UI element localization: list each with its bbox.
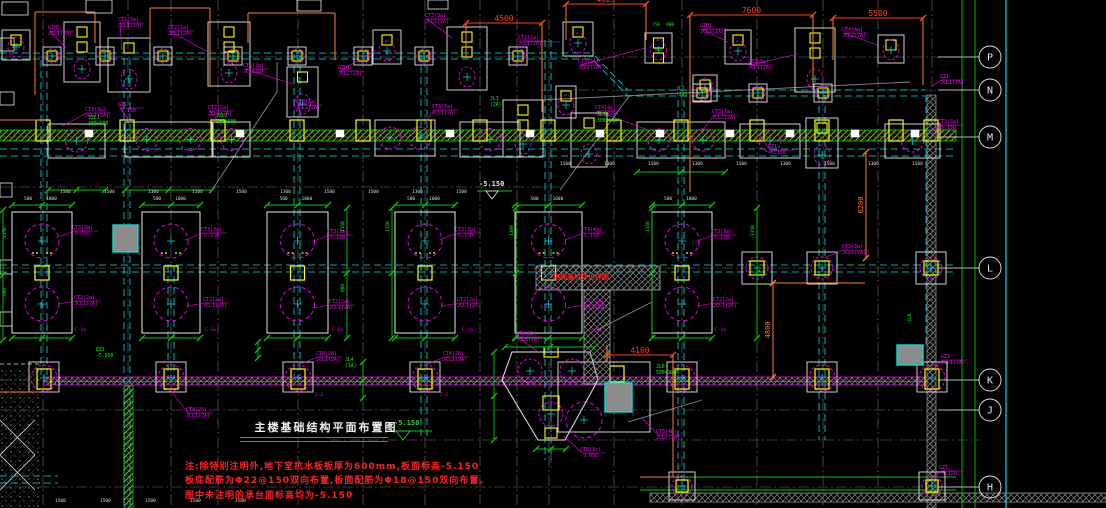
tick-label: 1300 xyxy=(604,161,615,167)
tick-label: 1500 xyxy=(145,498,156,504)
beam-tag: (1A) xyxy=(345,363,357,369)
grid-bubble-label-M: M xyxy=(987,133,993,144)
tick-label: 1300 xyxy=(868,161,879,167)
strip-tick xyxy=(851,130,859,137)
element-tag: JCL1(2A) xyxy=(941,360,965,366)
section-polyline xyxy=(540,82,910,100)
element-tag: JCL1(2A) xyxy=(186,413,210,419)
title-underline-2 xyxy=(240,441,388,442)
pad-dim-label: 1000 xyxy=(46,196,57,202)
pad-dim-label: 500 xyxy=(531,196,539,202)
tick-label: 1500 xyxy=(912,161,923,167)
element-tag: JCL1(2A) xyxy=(443,357,467,363)
plan-elevation-label: -5.150 xyxy=(479,180,504,188)
edge-box xyxy=(2,2,28,15)
edge-box xyxy=(297,0,321,11)
element-tag: -5.150 xyxy=(581,233,599,239)
beam-tag: JL6 xyxy=(656,364,665,370)
beam-tag: (2A) xyxy=(676,92,688,98)
tick-label: 1500 xyxy=(456,189,467,195)
element-tag: -5.150 xyxy=(455,233,473,239)
note-line-2: 板底配筋为Φ22@150双向布置,板面配筋为Φ18@150双向布置。 xyxy=(185,473,489,486)
strip-tick xyxy=(526,130,534,137)
element-tag: JCL2(2A) xyxy=(578,65,602,71)
tick-label: 1500 xyxy=(55,498,66,504)
element-tag: JCL1(2A) xyxy=(203,303,227,309)
element-tag: JCL2(2A) xyxy=(656,435,680,441)
tick-label: 1500 xyxy=(824,161,835,167)
tick-label: 1300 xyxy=(280,189,291,195)
element-tag: JCL2(2A) xyxy=(712,115,736,121)
element-tag: -5.150 xyxy=(118,108,136,114)
green-dim-label: 900 xyxy=(340,284,346,292)
column-square xyxy=(810,48,820,58)
pad-dim-label: 500 xyxy=(280,196,288,202)
section-tag: 2-2 xyxy=(440,392,448,398)
element-tag: JCL1(2A) xyxy=(842,250,866,256)
cad-viewport: 5001000500100050010005001000500100050010… xyxy=(0,0,1106,508)
element-tag: JCL1(2A) xyxy=(425,19,449,25)
pad-dim-label: 500 xyxy=(407,196,415,202)
tick-label: 1500 xyxy=(324,189,335,195)
element-tag: JCL2(2A) xyxy=(338,71,362,77)
beam-tag: JL3 xyxy=(490,96,499,102)
beam-tag: JZL2 xyxy=(216,113,228,119)
pad-dim-label: 1000 xyxy=(429,196,440,202)
column-square xyxy=(654,53,664,63)
element-tag: JCL1(2A) xyxy=(48,31,72,37)
tick-label: 1500 xyxy=(192,189,203,195)
green-dim-label: JL8 xyxy=(907,314,913,322)
beam-tag: 500x1200 xyxy=(656,370,679,376)
pit-square xyxy=(113,225,138,252)
pad-dim-label: 500 xyxy=(24,196,32,202)
grid-bubble-label-L: L xyxy=(987,264,993,275)
wall-strip-left xyxy=(124,386,133,508)
strip-tick xyxy=(85,130,93,137)
beam-tag: -5.950 xyxy=(96,353,113,359)
beam-tag: 300x600 xyxy=(216,119,236,125)
dim-label-4825: 4825 xyxy=(596,0,615,4)
note-line-1: 注:除特别注明外,地下室抗水板板厚为600mm,板面标高-5.150 xyxy=(185,459,479,472)
column-square xyxy=(298,72,308,82)
element-tag: JCL1(2A) xyxy=(713,303,737,309)
element-tag: -5.150 xyxy=(201,233,219,239)
beam-tag: 300x600 xyxy=(88,121,108,127)
tick-label: 1300 xyxy=(412,189,423,195)
grid-bubble-label-H: H xyxy=(987,483,993,494)
cad-canvas: 5001000500100050010005001000500100050010… xyxy=(0,0,1106,508)
column-square xyxy=(518,120,528,130)
beam-tag: JL2 xyxy=(676,86,685,92)
tick-label: 1500 xyxy=(100,498,111,504)
pit-square xyxy=(897,345,923,365)
tick-label: 1500 xyxy=(648,161,659,167)
tick-label: 1500 xyxy=(736,161,747,167)
element-tag: JCL1(2A) xyxy=(518,41,542,47)
element-tag: JCL1(2A) xyxy=(700,29,724,35)
tick-label: 1300 xyxy=(780,161,791,167)
element-tag: JCL1(2A) xyxy=(457,303,481,309)
dim-label-4500: 4500 xyxy=(494,14,513,23)
element-tag: JCL2(2A) xyxy=(842,33,866,39)
green-dim-label: 900 xyxy=(2,288,8,296)
column-square xyxy=(810,33,820,43)
pit-square xyxy=(605,383,632,412)
element-tag: -5.150 xyxy=(72,231,90,237)
column-square xyxy=(224,27,234,37)
green-dim-label: 1350 xyxy=(750,225,756,236)
tick-label: 1500 xyxy=(236,189,247,195)
tick-label: 1500 xyxy=(560,161,571,167)
tick-label: 1500 xyxy=(104,189,115,195)
pile-cap xyxy=(267,212,328,333)
note-line-3: 图中未注明的承台面标高均为-5.150 xyxy=(185,488,353,501)
green-dim-label: 1150 xyxy=(385,221,391,232)
element-tag: JCL1(2A) xyxy=(583,305,607,311)
green-dim-label: 900 xyxy=(666,22,674,28)
dim-label-6200: 6200 xyxy=(857,197,865,214)
elev-triangle xyxy=(486,191,498,199)
element-tag: JCL1(2A) xyxy=(432,110,456,116)
strip-tick xyxy=(911,130,919,137)
column-square xyxy=(733,35,743,45)
grid-bubble-label-N: N xyxy=(987,86,993,97)
grid-bubble-label-K: K xyxy=(987,376,993,387)
tick-label: 1300 xyxy=(148,189,159,195)
drawing-title: 主楼基础结构平面布置图 xyxy=(246,419,406,435)
element-tag: -5.150 xyxy=(939,471,957,477)
strip-tick xyxy=(656,130,664,137)
element-tag: JCL1(2A) xyxy=(118,23,142,29)
strip-tick xyxy=(726,130,734,137)
column-square xyxy=(124,43,134,53)
element-tag: JCL3(2A) xyxy=(516,337,540,343)
strip-tick xyxy=(446,130,454,137)
strip-tick xyxy=(236,130,244,137)
pad-unit xyxy=(806,118,838,168)
edge-box xyxy=(0,312,12,326)
green-dim-label: 1150 xyxy=(2,227,8,238)
pad-unit xyxy=(503,100,543,157)
element-tag: JCL1(2A) xyxy=(74,301,98,307)
element-tag: JCL1(2A) xyxy=(329,305,353,311)
column-square xyxy=(584,118,594,128)
column-square xyxy=(518,105,528,115)
green-dim-label: 750 xyxy=(652,22,660,28)
elevator-pit-label: 电梯基坑详见详图 xyxy=(553,274,623,281)
dim-label-4100: 4100 xyxy=(630,346,649,355)
element-tag: JCL1(2A) xyxy=(748,65,772,71)
strip-tick xyxy=(596,130,604,137)
section-tag: C-1a xyxy=(462,327,473,333)
section-tag: C-1a xyxy=(75,327,86,333)
edge-box xyxy=(0,92,14,105)
tick-label: 1500 xyxy=(60,189,71,195)
edge-box xyxy=(0,183,12,197)
column-square xyxy=(382,35,392,45)
section-tag: C-1a xyxy=(715,327,726,333)
title-elevation-label: -5.150 xyxy=(394,419,419,427)
grid-bubble-label-P: P xyxy=(987,53,993,64)
element-tag: JCL1(2A) xyxy=(940,80,964,86)
beam-tag: DZ1 xyxy=(96,347,105,353)
pad-dim-label: 1000 xyxy=(302,196,313,202)
wall-strip-right xyxy=(927,95,936,508)
element-tag: -5.150 xyxy=(327,235,345,241)
green-dim-label: 1150 xyxy=(645,221,651,232)
section-tag: 2-2 xyxy=(315,392,323,398)
dim-label-5500: 5500 xyxy=(868,9,887,18)
beam-tag: JL4 xyxy=(345,357,354,363)
strip-tick xyxy=(336,130,344,137)
green-dim-label: 1150 xyxy=(340,221,346,232)
pad-dim-label: 1000 xyxy=(175,196,186,202)
beam-tag: (2A) xyxy=(490,102,502,108)
dim-label-4800: 4800 xyxy=(764,322,772,339)
strip-footing-k xyxy=(44,377,927,385)
dim-label-7600: 7600 xyxy=(742,6,761,15)
green-dim-label: 1300 xyxy=(509,225,515,236)
element-tag: -5.150 xyxy=(938,125,956,131)
column-square xyxy=(77,27,87,37)
element-tag: JCL1(2A) xyxy=(316,357,340,363)
grid-bubble-label-J: J xyxy=(987,406,993,417)
column-square xyxy=(573,27,583,37)
beam-tag: JL10 xyxy=(597,112,609,118)
section-tag: C-1a xyxy=(590,327,601,333)
beam-tag: 300x600 xyxy=(597,118,617,124)
section-tag: 1-1 xyxy=(540,304,548,310)
element-tag: -5.150 xyxy=(711,235,729,241)
strip-tick xyxy=(786,130,794,137)
element-tag: JCL1(2A) xyxy=(243,69,267,75)
pile-cap xyxy=(12,212,72,333)
wall-line-cyan xyxy=(595,56,628,90)
element-tag: -5.150 xyxy=(768,150,786,156)
pad-dim-label: 1000 xyxy=(553,196,564,202)
edge-box xyxy=(428,0,448,9)
edge-box xyxy=(86,0,112,13)
tick-label: 1300 xyxy=(692,161,703,167)
section-polyline xyxy=(628,400,702,422)
section-tag: C-1a xyxy=(205,327,216,333)
column-square xyxy=(462,47,472,57)
column-square xyxy=(77,42,87,52)
column-square xyxy=(462,32,472,42)
section-polyline xyxy=(210,62,277,193)
section-tag: C-1a xyxy=(332,327,343,333)
pad-dim-label: 500 xyxy=(153,196,161,202)
element-tag: JCL2(2A) xyxy=(296,105,320,111)
tick-label: 1500 xyxy=(368,189,379,195)
pad-dim-label: 500 xyxy=(664,196,672,202)
element-tag: JCL2(2A) xyxy=(168,31,192,37)
pad-dim-label: 1000 xyxy=(686,196,697,202)
title-underline-1 xyxy=(240,437,388,438)
element-tag: -5.950 xyxy=(580,453,598,459)
beam-tag: JZL1 xyxy=(88,115,100,121)
